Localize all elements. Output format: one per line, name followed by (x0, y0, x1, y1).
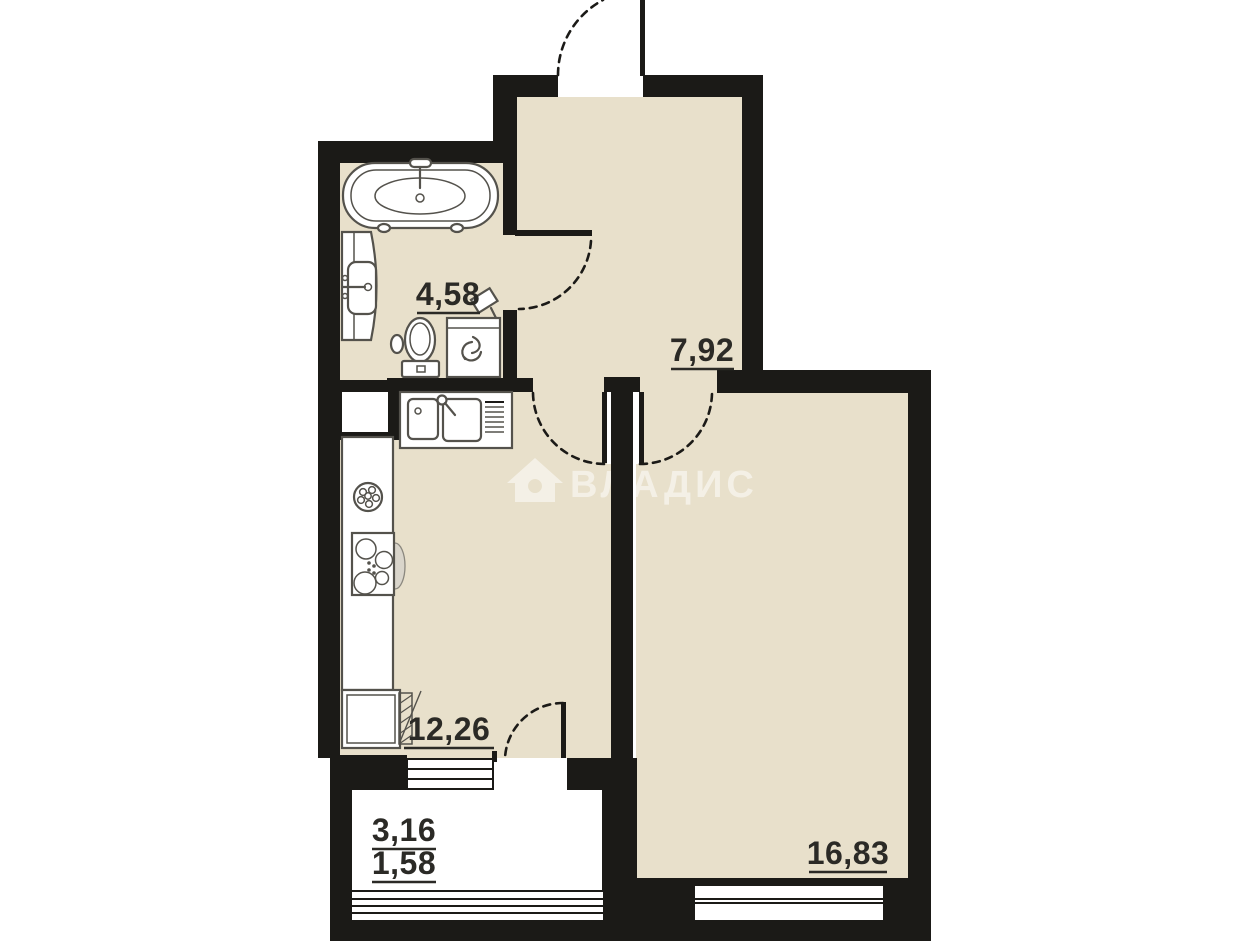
entrance-door-arc (558, 0, 603, 75)
bathtub-foot (378, 224, 390, 232)
kitchen-hob (352, 533, 394, 595)
kitchen-balcony-window (407, 759, 493, 789)
fridge (342, 690, 400, 748)
bathtub-foot (451, 224, 463, 232)
bathroom-sink (342, 232, 377, 340)
wall-door-stub (604, 377, 640, 392)
balcony-area-total-label: 3,16 (372, 812, 436, 848)
bathroom-doorway-floor (503, 235, 517, 310)
toilet-tank (402, 361, 439, 377)
bathroom-area-label: 4,58 (416, 276, 480, 312)
living-room-door-leaf (639, 392, 644, 463)
wall-hall-right (742, 75, 763, 393)
bathroom-door-leaf (515, 230, 592, 236)
wall-bath-hall-upper (503, 163, 517, 235)
wall-bathroom-bottom (387, 378, 533, 392)
wall-room-right (908, 370, 931, 941)
wall-room-top (717, 370, 931, 393)
wall-kitchen-sill-right (567, 758, 612, 790)
balcony-door-leaf (561, 702, 566, 758)
hallway-area-label: 7,92 (670, 332, 734, 368)
floor-plan-image: ВЛАДИС (0, 0, 1254, 941)
living-room-area-label: 16,83 (807, 835, 890, 871)
kitchen-sink-unit (400, 392, 512, 448)
sink-bowl-small (408, 399, 438, 439)
living-room-window (695, 886, 883, 920)
sink-bowl-large (443, 399, 481, 441)
kitchen-door-leaf (602, 392, 607, 463)
wall-left-outer (318, 141, 340, 758)
floor-plan-svg: ВЛАДИС (0, 0, 1254, 941)
wall-bath-hall-lower (503, 310, 517, 380)
bathtub (343, 159, 498, 232)
vent-shaft-niche (342, 392, 388, 432)
kitchen-area-label: 12,26 (408, 711, 491, 747)
entrance-door-leaf (640, 0, 645, 76)
balcony-area-reduced-label: 1,58 (372, 845, 436, 881)
wall-kitchen-room (611, 392, 633, 758)
watermark-text: ВЛАДИС (570, 464, 758, 506)
bathtub-faucet (410, 159, 431, 167)
kitchen-strainer (354, 483, 382, 511)
balcony-window (352, 892, 603, 920)
